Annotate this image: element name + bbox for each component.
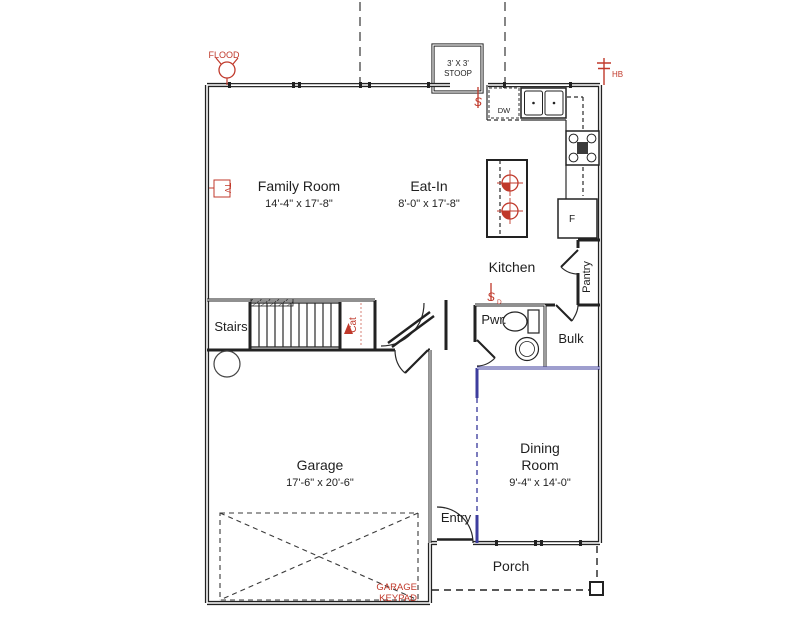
- window: [228, 82, 295, 88]
- garage-dims: 17'-6" x 20'-6": [286, 477, 354, 489]
- window: [298, 82, 362, 88]
- hose-bib-icon: HB: [597, 58, 623, 85]
- fridge-label: F: [569, 214, 575, 225]
- dimmer-switch-icon: S D: [487, 283, 502, 306]
- stoop-label: STOOP: [444, 69, 472, 78]
- dining-room-dims: 9'-4" x 14'-0": [509, 477, 571, 489]
- window: [368, 82, 430, 88]
- range-stove: [566, 131, 599, 165]
- garage-keypad-line1: GARAGE: [376, 582, 417, 593]
- interior-walls: [207, 240, 600, 543]
- flood-label: FLOOD: [208, 50, 240, 60]
- kitchen-island: [487, 160, 527, 237]
- pantry-door: [561, 250, 578, 274]
- bulk-door: [556, 305, 578, 321]
- bulk-label: Bulk: [558, 331, 584, 346]
- window: [540, 540, 582, 546]
- garage-entry-door: [395, 350, 428, 373]
- powder-label: Pwr.: [481, 312, 506, 327]
- garage-keypad-label: GARAGE KEYPAD: [376, 582, 417, 604]
- kitchen-sink: [521, 88, 566, 118]
- stairs-label: Stairs: [214, 319, 248, 334]
- hose-bib-label: HB: [612, 70, 623, 79]
- tv-label: TV: [223, 183, 232, 194]
- tv-outlet-icon: TV: [209, 180, 232, 197]
- eat-in-label: Eat-In: [410, 178, 447, 194]
- cat-jack-icon: Cat: [344, 303, 361, 345]
- refrigerator: [558, 199, 597, 238]
- powder-door: [477, 340, 495, 366]
- exterior-walls: [207, 85, 600, 603]
- window: [495, 540, 537, 546]
- dining-room-label-1: Dining: [520, 440, 560, 456]
- entry-label: Entry: [441, 510, 472, 525]
- staircase: [250, 299, 340, 347]
- coat-closet-doors: [381, 303, 434, 347]
- stoop-dims: 3' X 3': [447, 59, 469, 68]
- water-heater: [214, 351, 240, 377]
- floor-plan-drawing: FLOOD HB TV S S D Cat GARAGE KEYPAD Fami…: [0, 0, 800, 622]
- stair-rail-hatch: [251, 299, 293, 306]
- pantry-label: Pantry: [581, 261, 593, 293]
- dimmer-sub-label: D: [497, 299, 502, 306]
- eat-in-dims: 8'-0" x 17'-8": [398, 198, 460, 210]
- flood-light-icon: FLOOD: [208, 50, 240, 85]
- porch-label: Porch: [493, 558, 530, 574]
- dimmer-switch-label: S: [487, 290, 495, 304]
- dining-room-label-2: Room: [521, 457, 558, 473]
- floor-plan-page: FLOOD HB TV S S D Cat GARAGE KEYPAD Fami…: [0, 0, 800, 622]
- kitchen-sink-window: [503, 82, 572, 88]
- toilet: [503, 310, 539, 333]
- switch-label: S: [474, 95, 482, 109]
- garage-label: Garage: [297, 457, 344, 473]
- dishwasher-label: DW: [498, 106, 511, 115]
- family-room-label: Family Room: [258, 178, 340, 194]
- kitchen-label: Kitchen: [489, 259, 536, 275]
- porch-post: [590, 582, 603, 595]
- garage-keypad-line2: KEYPAD: [379, 593, 417, 604]
- family-room-dims: 14'-4" x 17'-8": [265, 198, 333, 210]
- powder-sink: [516, 338, 539, 361]
